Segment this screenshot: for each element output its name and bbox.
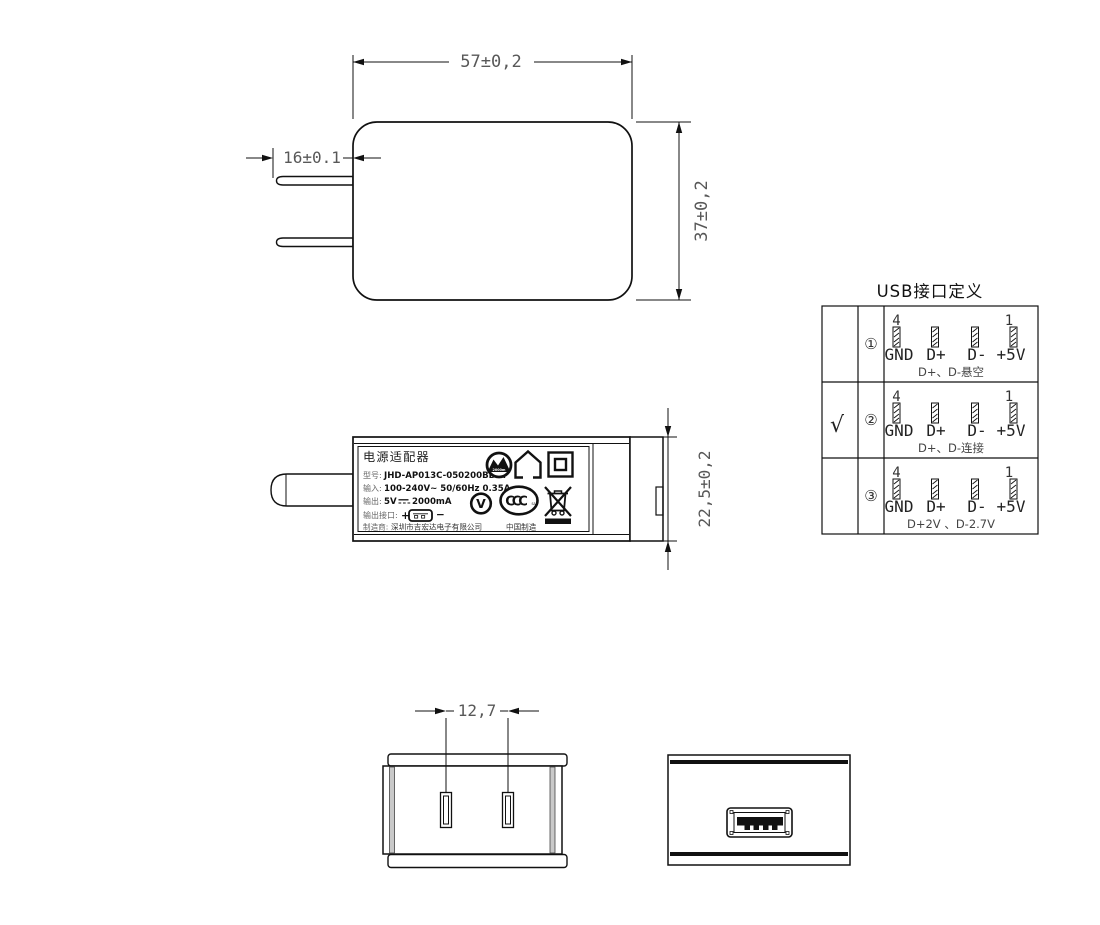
usb-pin-table: USB接口定义 ① 4 1 GND D+ D- +5V D+、D-悬空 (822, 282, 1038, 534)
row1-pin-label-dplus: D+ (926, 345, 945, 364)
row3-index: ③ (864, 487, 877, 505)
row2-pin-label-5v: +5V (997, 421, 1026, 440)
back-left-rail (390, 767, 395, 853)
usb-face-body (668, 755, 850, 865)
svg-text:V: V (476, 496, 486, 511)
input-value: 100-240V~ 50/60Hz 0.35A (384, 484, 511, 494)
dim-pin-pitch-label: 12,7 (458, 701, 497, 720)
output-voltage: 5V (384, 497, 397, 507)
row1-index: ① (864, 335, 877, 353)
row3-pin-label-dplus: D+ (926, 497, 945, 516)
usb-table-title: USB接口定义 (877, 282, 984, 301)
row1-pins (893, 327, 1017, 347)
front-prong-lower (277, 238, 354, 247)
row2-index: ② (864, 411, 877, 429)
maker-value: 深圳市吉宏达电子有限公司 (391, 522, 482, 532)
back-view: 12,7 (383, 701, 567, 868)
row3-note: D+2V 、D-2.7V (907, 517, 995, 531)
port-minus: − (436, 509, 445, 521)
back-bottom-cap (388, 855, 567, 868)
row1-note: D+、D-悬空 (918, 365, 984, 379)
port-key: 输出接口: (363, 510, 398, 520)
usb-face-bottom-band (670, 852, 848, 856)
dim-thickness-label: 22,5±0,2 (695, 450, 714, 527)
front-body-outline (353, 122, 632, 300)
row1-pin-label-dminus: D- (967, 345, 986, 364)
adapter-technical-drawing: 57±0,2 37±0,2 16±0.1 (0, 0, 1100, 925)
row2-selected-mark: √ (830, 413, 845, 438)
altitude-2000m-icon: 2000m (487, 453, 511, 477)
prong-slot-right (503, 793, 514, 828)
svg-text:CCC: CCC (505, 495, 527, 510)
back-top-cap (388, 754, 567, 766)
row2-pins (893, 403, 1017, 423)
row3-pin-label-dminus: D- (967, 497, 986, 516)
model-key: 型号: (363, 471, 382, 480)
dim-height (636, 122, 691, 300)
row2-note: D+、D-连接 (918, 441, 984, 455)
usb-face-view (668, 755, 850, 865)
made-in: 中国制造 (506, 522, 537, 532)
output-key: 输出: (363, 496, 382, 506)
side-prong (271, 474, 353, 506)
efficiency-v-icon: V (471, 494, 491, 514)
dim-width-label: 57±0,2 (460, 52, 521, 72)
table-row-1: ① 4 1 GND D+ D- +5V D+、D-悬空 (864, 313, 1026, 379)
table-row-3: ③ 4 1 GND D+ D- +5V D+2V 、D-2.7V (864, 465, 1026, 531)
label-title: 电源适配器 (363, 450, 430, 464)
input-key: 输入: (363, 483, 382, 493)
front-prong-upper (277, 177, 354, 186)
prong-slot-left (441, 793, 452, 828)
row3-pin-label-gnd: GND (885, 497, 914, 516)
row2-pin-label-dminus: D- (967, 421, 986, 440)
row1-pin-label-5v: +5V (997, 345, 1026, 364)
output-current: 2000mA (412, 497, 452, 507)
side-end-cap (630, 437, 663, 541)
svg-text:2000m: 2000m (493, 468, 506, 472)
usb-face-top-band (670, 760, 848, 764)
dim-height-label: 37±0,2 (692, 180, 712, 241)
table-row-2: √ ② 4 1 GND D+ D- +5V D+、D-连接 (830, 389, 1026, 455)
side-view: 电源适配器 型号: JHD-AP013C-050200BB-A 输入: 100-… (271, 408, 714, 570)
row1-pin-label-gnd: GND (885, 345, 914, 364)
back-right-rail (550, 767, 555, 853)
ccc-mark-icon: CCC S&E (501, 487, 539, 515)
maker-key: 制造商: (363, 522, 388, 532)
row3-pin-label-5v: +5V (997, 497, 1026, 516)
svg-text:S&E: S&E (532, 502, 539, 506)
row3-pins (893, 479, 1017, 499)
model-value: JHD-AP013C-050200BB-A (383, 471, 506, 481)
back-body (383, 766, 562, 854)
usb-tongue (737, 817, 783, 826)
row2-pin-label-dplus: D+ (926, 421, 945, 440)
front-view: 57±0,2 37±0,2 16±0.1 (246, 52, 712, 300)
dim-prong-label: 16±0.1 (283, 148, 341, 167)
drawing-svg: 57±0,2 37±0,2 16±0.1 (0, 0, 1100, 925)
row2-pin-label-gnd: GND (885, 421, 914, 440)
